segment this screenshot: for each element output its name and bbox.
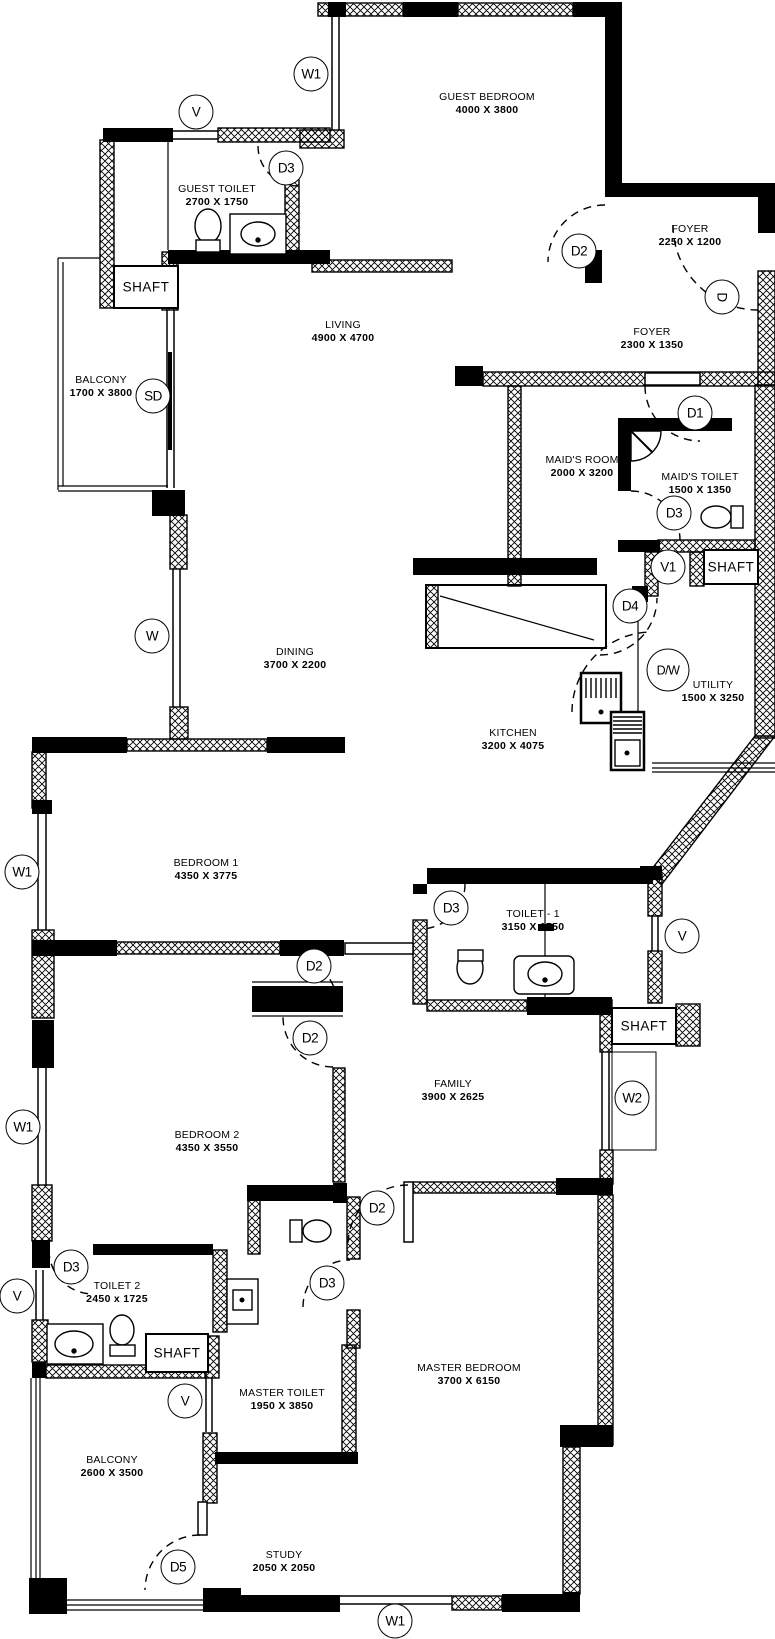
room-label-bedroom-1: BEDROOM 1 4350 X 3775 bbox=[174, 857, 239, 883]
symbol-door-d2-living-foyer: D2 bbox=[562, 234, 597, 269]
room-label-living: LIVING 4900 X 4700 bbox=[312, 319, 375, 345]
symbol-window-w2-family: W2 bbox=[615, 1081, 650, 1116]
room-dims: 3200 X 4075 bbox=[482, 740, 545, 753]
shaft-label-bottom: SHAFT bbox=[152, 1346, 203, 1361]
room-name: MAID'S TOILET bbox=[661, 471, 738, 484]
room-dims: 2600 X 3500 bbox=[81, 1467, 144, 1480]
symbol-door-d3-maids-toilet: D3 bbox=[657, 496, 692, 531]
symbol-door-d5-balcony: D5 bbox=[161, 1550, 196, 1585]
room-name: TOILET - 1 bbox=[502, 908, 565, 921]
room-dims: 2050 X 2050 bbox=[253, 1562, 316, 1575]
room-dims: 1700 X 3800 bbox=[70, 387, 133, 400]
room-dims: 3700 X 2200 bbox=[264, 659, 327, 672]
shaft-label-maids: SHAFT bbox=[706, 560, 757, 575]
room-dims: 4000 X 3800 bbox=[439, 104, 535, 117]
room-label-guest-toilet: GUEST TOILET 2700 X 1750 bbox=[178, 183, 256, 209]
room-name: DINING bbox=[264, 646, 327, 659]
symbol-door-d2-bedroom2: D2 bbox=[293, 1021, 328, 1056]
symbol-door-d-entry: D bbox=[705, 280, 740, 315]
symbol-vent-v-master-toilet: V bbox=[168, 1384, 203, 1419]
room-dims: 2000 X 3200 bbox=[545, 467, 618, 480]
room-name: BEDROOM 1 bbox=[174, 857, 239, 870]
room-dims: 3700 X 6150 bbox=[417, 1375, 521, 1388]
toilet-wc-toilet2 bbox=[110, 1315, 134, 1345]
room-dims: 1500 X 3250 bbox=[682, 692, 745, 705]
room-label-study: STUDY 2050 X 2050 bbox=[253, 1549, 316, 1575]
symbol-vent-v-guest-toilet: V bbox=[179, 95, 214, 130]
room-name: GUEST TOILET bbox=[178, 183, 256, 196]
floor-plan: GUEST BEDROOM 4000 X 3800 GUEST TOILET 2… bbox=[0, 0, 775, 1639]
room-dims: 2700 X 1750 bbox=[178, 196, 256, 209]
symbol-vent-v-toilet1: V bbox=[665, 919, 700, 954]
room-label-dining: DINING 3700 X 2200 bbox=[264, 646, 327, 672]
symbol-vent-v-toilet2: V bbox=[0, 1279, 35, 1314]
room-name: GUEST BEDROOM bbox=[439, 91, 535, 104]
symbol-door-d1-maids-room: D1 bbox=[678, 396, 713, 431]
symbol-door-d3-toilet1: D3 bbox=[434, 891, 469, 926]
room-label-utility: UTILITY 1500 X 3250 bbox=[682, 679, 745, 705]
room-dims: 4350 X 3775 bbox=[174, 870, 239, 883]
room-name: MASTER TOILET bbox=[239, 1387, 325, 1400]
room-label-foyer-1: FOYER 2250 X 1200 bbox=[659, 223, 722, 249]
partitions bbox=[168, 142, 638, 1016]
room-label-family: FAMILY 3900 X 2625 bbox=[422, 1078, 485, 1104]
room-label-toilet-2: TOILET 2 2450 x 1725 bbox=[86, 1280, 148, 1306]
room-name: BALCONY bbox=[81, 1454, 144, 1467]
toilet-wc-guest bbox=[195, 209, 221, 243]
room-name: STUDY bbox=[253, 1549, 316, 1562]
symbol-door-d2-bedroom1: D2 bbox=[297, 949, 332, 984]
symbol-door-dw-utility: D/W bbox=[647, 649, 690, 692]
room-dims: 2300 X 1350 bbox=[621, 339, 684, 352]
symbol-window-w1-study: W1 bbox=[378, 1604, 413, 1639]
symbol-door-d3-guest-toilet: D3 bbox=[269, 151, 304, 186]
room-label-maids-toilet: MAID'S TOILET 1500 X 1350 bbox=[661, 471, 738, 497]
room-dims: 4900 X 4700 bbox=[312, 332, 375, 345]
room-label-bedroom-2: BEDROOM 2 4350 X 3550 bbox=[175, 1129, 240, 1155]
room-name: LIVING bbox=[312, 319, 375, 332]
symbol-vent-v1-shaft: V1 bbox=[651, 550, 686, 585]
room-name: MASTER BEDROOM bbox=[417, 1362, 521, 1375]
room-name: UTILITY bbox=[682, 679, 745, 692]
symbol-door-d3-master-toilet: D3 bbox=[310, 1266, 345, 1301]
room-label-guest-bedroom: GUEST BEDROOM 4000 X 3800 bbox=[439, 91, 535, 117]
room-dims: 2450 x 1725 bbox=[86, 1293, 148, 1306]
room-name: FAMILY bbox=[422, 1078, 485, 1091]
room-name: FOYER bbox=[621, 326, 684, 339]
room-dims: 3150 X 1750 bbox=[502, 921, 565, 934]
room-dims: 3900 X 2625 bbox=[422, 1091, 485, 1104]
symbol-sliding-door-sd-balcony: SD bbox=[136, 379, 171, 414]
shaft-label-family: SHAFT bbox=[619, 1019, 670, 1034]
room-dims: 1950 X 3850 bbox=[239, 1400, 325, 1413]
room-name: KITCHEN bbox=[482, 727, 545, 740]
symbol-door-d2-master-bedroom: D2 bbox=[360, 1191, 395, 1226]
shaft-label-top-left: SHAFT bbox=[121, 280, 172, 295]
symbol-window-w1-bedroom2: W1 bbox=[6, 1110, 41, 1145]
room-label-toilet-1: TOILET - 1 3150 X 1750 bbox=[502, 908, 565, 934]
symbol-window-w1-top: W1 bbox=[294, 57, 329, 92]
room-name: MAID'S ROOM bbox=[545, 454, 618, 467]
room-label-balcony-top: BALCONY 1700 X 3800 bbox=[70, 374, 133, 400]
toilet-wc-maids bbox=[701, 506, 731, 528]
room-dims: 2250 X 1200 bbox=[659, 236, 722, 249]
room-name: BALCONY bbox=[70, 374, 133, 387]
kitchen-counter bbox=[426, 585, 606, 648]
room-label-balcony-bottom: BALCONY 2600 X 3500 bbox=[81, 1454, 144, 1480]
symbol-window-w1-bedroom1: W1 bbox=[5, 855, 40, 890]
room-label-maids-room: MAID'S ROOM 2000 X 3200 bbox=[545, 454, 618, 480]
symbol-window-w-dining: W bbox=[135, 619, 170, 654]
room-name: BEDROOM 2 bbox=[175, 1129, 240, 1142]
symbol-door-d3-toilet2: D3 bbox=[54, 1250, 89, 1285]
room-name: TOILET 2 bbox=[86, 1280, 148, 1293]
room-label-master-toilet: MASTER TOILET 1950 X 3850 bbox=[239, 1387, 325, 1413]
symbol-door-d4-utility: D4 bbox=[613, 589, 648, 624]
room-dims: 4350 X 3550 bbox=[175, 1142, 240, 1155]
railings bbox=[31, 258, 775, 1610]
toilet-wc-master bbox=[290, 1220, 302, 1242]
room-name: FOYER bbox=[659, 223, 722, 236]
room-label-foyer-2: FOYER 2300 X 1350 bbox=[621, 326, 684, 352]
room-label-master-bedroom: MASTER BEDROOM 3700 X 6150 bbox=[417, 1362, 521, 1388]
room-label-kitchen: KITCHEN 3200 X 4075 bbox=[482, 727, 545, 753]
